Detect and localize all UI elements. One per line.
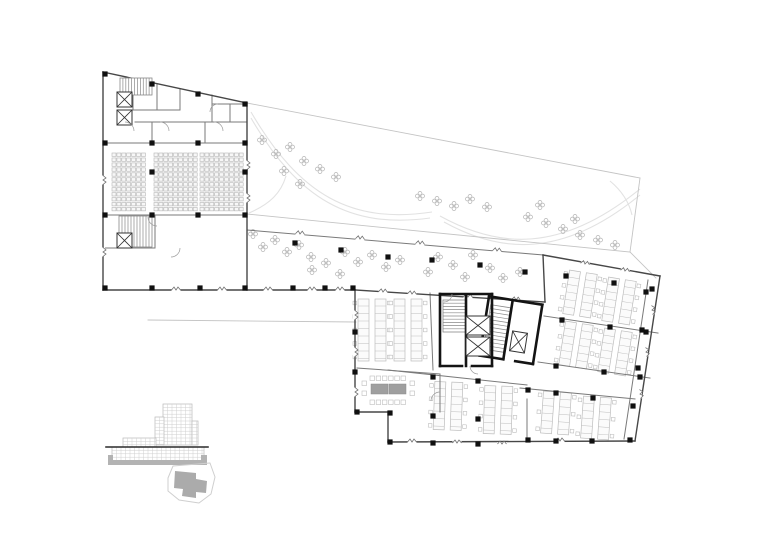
- seat: [188, 207, 192, 210]
- seat: [220, 183, 224, 186]
- seat: [154, 173, 158, 176]
- plant-centre: [385, 266, 387, 268]
- seat: [154, 193, 158, 196]
- seat: [188, 188, 192, 191]
- chair: [631, 347, 635, 351]
- column: [242, 212, 247, 217]
- seat: [234, 153, 238, 156]
- door-arc: [210, 104, 218, 112]
- seat: [179, 178, 183, 181]
- seat: [164, 193, 168, 196]
- seat: [215, 188, 219, 191]
- seat: [193, 198, 197, 201]
- seat: [159, 173, 163, 176]
- desk-cluster: [353, 299, 391, 361]
- chair: [560, 322, 564, 326]
- seat: [117, 188, 121, 191]
- seat: [169, 183, 173, 186]
- seat: [154, 198, 158, 201]
- seat: [174, 153, 178, 156]
- seat: [117, 178, 121, 181]
- chair: [536, 427, 540, 431]
- seat: [154, 178, 158, 181]
- column: [242, 101, 247, 106]
- chair: [478, 428, 482, 432]
- seat: [225, 207, 229, 210]
- window-break-icon: [295, 231, 304, 237]
- seat: [169, 158, 173, 161]
- seat: [164, 173, 168, 176]
- seat: [174, 163, 178, 166]
- chair: [595, 353, 599, 357]
- seat: [234, 158, 238, 161]
- seat: [132, 158, 136, 161]
- seat: [183, 207, 187, 210]
- seat: [141, 188, 145, 191]
- seat: [215, 153, 219, 156]
- column: [102, 212, 107, 217]
- seat: [154, 153, 158, 156]
- seat: [183, 193, 187, 196]
- stair: [443, 300, 466, 332]
- plant-centre: [597, 239, 599, 241]
- seat: [229, 183, 233, 186]
- seat: [205, 203, 209, 206]
- chair: [558, 334, 562, 338]
- core-wall: [489, 296, 542, 304]
- seat: [112, 168, 116, 171]
- seat: [183, 178, 187, 181]
- column: [553, 363, 558, 368]
- desk-cluster: [478, 385, 518, 434]
- plant-centre: [275, 153, 277, 155]
- seat: [137, 193, 141, 196]
- plant-centre: [419, 195, 421, 197]
- seat: [179, 153, 183, 156]
- plant-icon: [433, 197, 442, 206]
- wall-light: [148, 320, 356, 322]
- plant-icon: [542, 219, 551, 228]
- conference-room: [362, 376, 415, 405]
- elevation-block: [123, 438, 156, 447]
- seat: [239, 153, 243, 156]
- window-break-icon: [353, 388, 358, 397]
- seat: [210, 153, 214, 156]
- chair: [410, 381, 415, 386]
- seat: [159, 178, 163, 181]
- column: [195, 212, 200, 217]
- seat: [154, 168, 158, 171]
- seat: [141, 193, 145, 196]
- seat: [225, 188, 229, 191]
- seat: [215, 193, 219, 196]
- seat: [141, 207, 145, 210]
- chair: [430, 384, 434, 388]
- chair: [389, 355, 393, 359]
- seat: [229, 207, 233, 210]
- seat: [137, 188, 141, 191]
- seat: [200, 203, 204, 206]
- window-break-icon: [101, 248, 106, 257]
- seat: [188, 153, 192, 156]
- seat: [132, 178, 136, 181]
- seat: [215, 203, 219, 206]
- seat: [122, 153, 126, 156]
- seat: [137, 173, 141, 176]
- plant-centre: [472, 254, 474, 256]
- seat: [225, 158, 229, 161]
- seat: [174, 198, 178, 201]
- column: [102, 285, 107, 290]
- seat: [132, 163, 136, 166]
- seat: [174, 158, 178, 161]
- chair: [596, 289, 600, 293]
- seat: [205, 183, 209, 186]
- desk-cluster: [536, 391, 577, 436]
- seat: [117, 203, 121, 206]
- window-break-icon: [492, 248, 501, 254]
- seat: [205, 163, 209, 166]
- seat: [137, 153, 141, 156]
- chair: [389, 342, 393, 346]
- plant-centre: [335, 176, 337, 178]
- column: [639, 327, 644, 332]
- column: [352, 369, 357, 374]
- wall-dark: [388, 441, 635, 442]
- seat: [112, 198, 116, 201]
- seat: [127, 158, 131, 161]
- seat: [127, 188, 131, 191]
- column: [627, 437, 632, 442]
- seat: [234, 188, 238, 191]
- seat: [183, 168, 187, 171]
- seat: [174, 193, 178, 196]
- seat: [234, 168, 238, 171]
- chair: [423, 301, 427, 305]
- seat: [117, 163, 121, 166]
- seat: [122, 178, 126, 181]
- column: [292, 240, 297, 245]
- chair: [631, 319, 635, 323]
- wall-dark: [543, 255, 660, 276]
- plant-centre: [299, 183, 301, 185]
- seat: [229, 203, 233, 206]
- seat: [179, 198, 183, 201]
- seat: [229, 188, 233, 191]
- chair: [389, 315, 393, 319]
- plant-centre: [436, 200, 438, 202]
- seat: [154, 188, 158, 191]
- seat: [127, 198, 131, 201]
- wall-dark: [543, 255, 545, 302]
- seat: [117, 193, 121, 196]
- column: [430, 374, 435, 379]
- window-break-icon: [620, 267, 630, 273]
- chair: [514, 389, 518, 393]
- seat: [188, 158, 192, 161]
- seat: [234, 203, 238, 206]
- chair: [635, 296, 639, 300]
- seat: [159, 198, 163, 201]
- chair: [594, 328, 598, 332]
- site-building-footprint: [174, 471, 207, 498]
- column: [387, 410, 392, 415]
- seat: [159, 158, 163, 161]
- door-arc: [171, 248, 180, 257]
- seat: [127, 178, 131, 181]
- plant-centre: [437, 256, 439, 258]
- desk-block: [581, 396, 595, 439]
- seat: [210, 168, 214, 171]
- seat: [132, 203, 136, 206]
- column: [601, 369, 606, 374]
- plant-centre: [469, 198, 471, 200]
- chair: [601, 290, 605, 294]
- chair: [423, 355, 427, 359]
- seat: [205, 173, 209, 176]
- plant-icon: [336, 270, 345, 279]
- seat: [137, 183, 141, 186]
- seat: [200, 173, 204, 176]
- seat: [183, 173, 187, 176]
- plant-centre: [579, 234, 581, 236]
- chair: [389, 376, 394, 381]
- chair: [370, 400, 375, 405]
- seat: [188, 168, 192, 171]
- wall-medium: [430, 293, 433, 370]
- plant-centre: [298, 244, 300, 246]
- seat: [132, 183, 136, 186]
- seat: [220, 178, 224, 181]
- seat: [137, 178, 141, 181]
- conference-table: [389, 384, 406, 394]
- seat: [220, 158, 224, 161]
- window-break-icon: [172, 287, 181, 292]
- seat: [164, 153, 168, 156]
- plant-icon: [286, 143, 295, 152]
- chair: [382, 376, 387, 381]
- chair: [401, 400, 406, 405]
- chair: [578, 398, 582, 402]
- seat: [215, 207, 219, 210]
- plant-icon: [536, 201, 545, 210]
- seat: [215, 163, 219, 166]
- chair: [572, 395, 576, 399]
- column: [559, 317, 564, 322]
- auditorium-seating: [112, 153, 243, 211]
- path-curve: [251, 118, 430, 220]
- seat: [215, 178, 219, 181]
- chair: [395, 376, 400, 381]
- seat: [112, 163, 116, 166]
- column: [430, 413, 435, 418]
- seat: [188, 203, 192, 206]
- seat: [239, 158, 243, 161]
- column: [429, 257, 434, 262]
- seat: [188, 178, 192, 181]
- window-break-icon: [353, 311, 358, 320]
- chair: [389, 328, 393, 332]
- window-break-icon: [336, 287, 345, 292]
- door-arc: [214, 122, 223, 131]
- seat: [112, 193, 116, 196]
- seat: [188, 183, 192, 186]
- seat: [225, 173, 229, 176]
- chair: [513, 429, 517, 433]
- seat: [220, 203, 224, 206]
- chair: [599, 302, 603, 306]
- seat: [220, 188, 224, 191]
- plant-icon: [466, 195, 475, 204]
- seat: [200, 163, 204, 166]
- plant-centre: [339, 273, 341, 275]
- seat: [159, 207, 163, 210]
- plant-centre: [252, 233, 254, 235]
- seat: [193, 158, 197, 161]
- seat: [117, 158, 121, 161]
- window-break-icon: [453, 440, 462, 445]
- seat: [117, 207, 121, 210]
- plant-icon: [322, 259, 331, 268]
- plant-centre: [427, 271, 429, 273]
- desk-block: [541, 391, 555, 434]
- seat: [159, 188, 163, 191]
- desk-block: [375, 299, 386, 361]
- chair: [479, 401, 483, 405]
- seat: [164, 168, 168, 171]
- seat: [225, 163, 229, 166]
- plant-centre: [274, 239, 276, 241]
- seat: [164, 203, 168, 206]
- seat: [234, 163, 238, 166]
- column: [477, 262, 482, 267]
- chair: [633, 308, 637, 312]
- column: [195, 140, 200, 145]
- desk-clusters: [353, 269, 641, 440]
- column: [149, 81, 154, 86]
- path-curve: [249, 176, 286, 213]
- wall-medium: [520, 388, 635, 399]
- seat: [193, 163, 197, 166]
- path-curve: [440, 189, 640, 239]
- chair: [376, 376, 381, 381]
- plant-centre: [310, 256, 312, 258]
- column: [322, 285, 327, 290]
- seat: [164, 207, 168, 210]
- seat: [183, 158, 187, 161]
- desk-cluster: [576, 396, 617, 441]
- window-break-icon: [353, 348, 358, 357]
- seat: [164, 188, 168, 191]
- seat: [174, 173, 178, 176]
- seat: [179, 168, 183, 171]
- seat: [200, 193, 204, 196]
- seat: [229, 153, 233, 156]
- chair: [597, 341, 601, 345]
- chair: [423, 342, 427, 346]
- column: [475, 441, 480, 446]
- seat: [132, 153, 136, 156]
- column: [430, 440, 435, 445]
- seat: [127, 168, 131, 171]
- seat: [210, 198, 214, 201]
- seat: [188, 163, 192, 166]
- wall-light: [247, 103, 640, 178]
- seat: [220, 198, 224, 201]
- seat: [141, 203, 145, 206]
- seat: [169, 153, 173, 156]
- window-break-icon: [415, 241, 424, 247]
- seat: [200, 183, 204, 186]
- seat: [169, 193, 173, 196]
- chair: [629, 359, 633, 363]
- seat: [210, 203, 214, 206]
- seat: [234, 198, 238, 201]
- seat: [193, 168, 197, 171]
- seat: [225, 193, 229, 196]
- seat: [137, 163, 141, 166]
- seat: [122, 173, 126, 176]
- column: [385, 254, 390, 259]
- seat: [215, 168, 219, 171]
- window-break-icon: [407, 291, 416, 297]
- column: [354, 409, 359, 414]
- seat: [137, 168, 141, 171]
- seat: [193, 203, 197, 206]
- plant-centre: [539, 204, 541, 206]
- seat: [112, 207, 116, 210]
- seat: [183, 163, 187, 166]
- plant-centre: [464, 276, 466, 278]
- seat: [117, 183, 121, 186]
- seat: [188, 193, 192, 196]
- seat: [174, 188, 178, 191]
- seat: [141, 153, 145, 156]
- window-break-icon: [101, 176, 106, 185]
- plant-centre: [489, 267, 491, 269]
- conference-table: [371, 384, 388, 394]
- desk-cluster: [597, 276, 641, 325]
- column: [590, 395, 595, 400]
- wall-dark: [635, 276, 660, 441]
- seat: [164, 163, 168, 166]
- chair: [560, 295, 564, 299]
- seat: [188, 173, 192, 176]
- plant-centre: [453, 205, 455, 207]
- chair: [554, 358, 558, 362]
- seat: [200, 158, 204, 161]
- desk-cluster: [389, 299, 427, 361]
- window-break-icon: [245, 161, 250, 170]
- seat: [127, 193, 131, 196]
- seat: [220, 173, 224, 176]
- elevator-shaft: [117, 110, 132, 125]
- seat: [127, 163, 131, 166]
- plant-icon: [368, 251, 377, 260]
- chair: [593, 365, 597, 369]
- seat: [205, 198, 209, 201]
- seat: [193, 178, 197, 181]
- plant-icon: [300, 157, 309, 166]
- seat: [193, 153, 197, 156]
- plant-centre: [319, 168, 321, 170]
- seat: [117, 153, 121, 156]
- seat: [164, 178, 168, 181]
- column: [242, 140, 247, 145]
- seat: [169, 198, 173, 201]
- column: [149, 169, 154, 174]
- seat: [205, 178, 209, 181]
